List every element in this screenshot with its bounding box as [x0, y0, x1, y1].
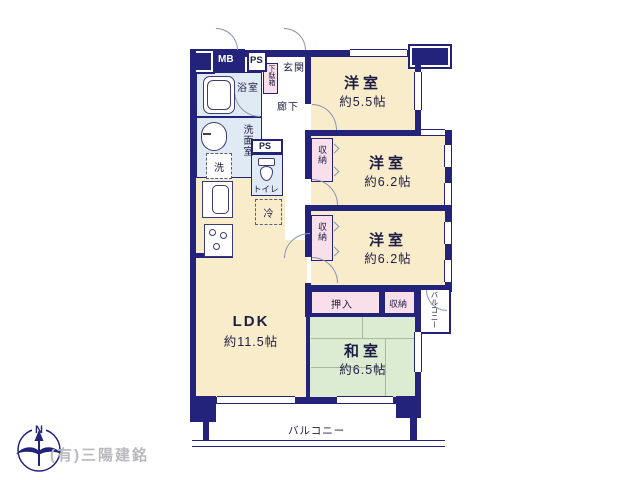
- stove-burner: [213, 243, 220, 250]
- mb-label: MB: [218, 54, 234, 65]
- closet3-label: 収納: [389, 297, 407, 310]
- bathtub-inner: [207, 80, 231, 110]
- fridge-label: 冷: [264, 205, 274, 220]
- japanese-name: 和室: [311, 340, 415, 361]
- entrance-door-arc: [216, 28, 238, 50]
- credit-text: (有)三陽建銘: [50, 444, 149, 465]
- fridge-box: 冷: [255, 199, 282, 225]
- ldk-door-arc: [284, 233, 310, 258]
- western2-size: 約6.2帖: [333, 171, 443, 190]
- wall-oshiire-bottom: [305, 313, 421, 317]
- toilet-icon: [258, 158, 275, 166]
- window-western1-right: [414, 72, 422, 110]
- balcony-right-wall: [410, 416, 417, 443]
- kitchen-sink-basin: [212, 185, 229, 214]
- wall-corridor: [305, 136, 311, 179]
- tatami-line: [362, 317, 363, 338]
- closet2-label: 収納: [316, 222, 329, 242]
- window-right-3: [444, 222, 452, 244]
- closet1-label: 収納: [316, 145, 329, 165]
- window-japanese-bottom: [337, 396, 393, 404]
- window-top: [350, 49, 407, 57]
- window-ldk-bottom: [217, 396, 295, 404]
- genkan-label: 玄関: [283, 59, 305, 74]
- sink-icon: [201, 122, 227, 151]
- wall-left: [190, 50, 196, 404]
- western3-size: 約6.2帖: [333, 248, 443, 267]
- ps-label-mid: PS: [259, 141, 271, 151]
- window-japanese-right: [414, 332, 422, 372]
- window-right-2: [444, 183, 452, 205]
- toilet-label: トイレ: [253, 183, 279, 195]
- getabako-label: 下駄箱: [266, 65, 276, 86]
- washroom-label: 洗面室: [239, 124, 254, 157]
- washer-box: 洗: [206, 153, 232, 179]
- window-right-1: [444, 145, 452, 167]
- japanese-size: 約6.5帖: [311, 359, 415, 378]
- western2-name: 洋室: [333, 152, 443, 173]
- balcony-railing: [192, 440, 445, 447]
- entrance-door-arc: [284, 28, 306, 50]
- window-step: [421, 129, 445, 136]
- rouka-label: 廊下: [277, 98, 299, 113]
- western3-name: 洋室: [333, 229, 443, 250]
- oshiire-label: 押入: [331, 296, 353, 311]
- window-right-4: [444, 260, 452, 282]
- north-label: N: [35, 424, 43, 436]
- ldk-size: 約11.5帖: [196, 331, 306, 350]
- tatami-line: [311, 338, 415, 339]
- stove-icon: [204, 224, 233, 257]
- western1-name: 洋室: [311, 72, 415, 93]
- bathroom-label: 浴室: [237, 79, 259, 94]
- stove-burner: [209, 229, 216, 236]
- floor-plan: MB PS バルコニー バルコニー: [0, 0, 640, 480]
- washer-label: 洗: [214, 159, 224, 174]
- sink-tap: [203, 133, 211, 135]
- stove-burner: [220, 232, 227, 239]
- western1-size: 約5.5帖: [311, 91, 415, 110]
- wall-oshiire-divider: [380, 291, 384, 314]
- wall-western-divider: [305, 205, 452, 211]
- ps-label-top: PS: [250, 55, 263, 66]
- balcony-bottom-label: バルコニー: [288, 423, 345, 438]
- pillar-bottom-right: [396, 396, 421, 418]
- wall-japanese-left: [306, 317, 310, 398]
- ldk-name: LDK: [196, 313, 306, 330]
- pillar-bottom-left: [190, 396, 216, 422]
